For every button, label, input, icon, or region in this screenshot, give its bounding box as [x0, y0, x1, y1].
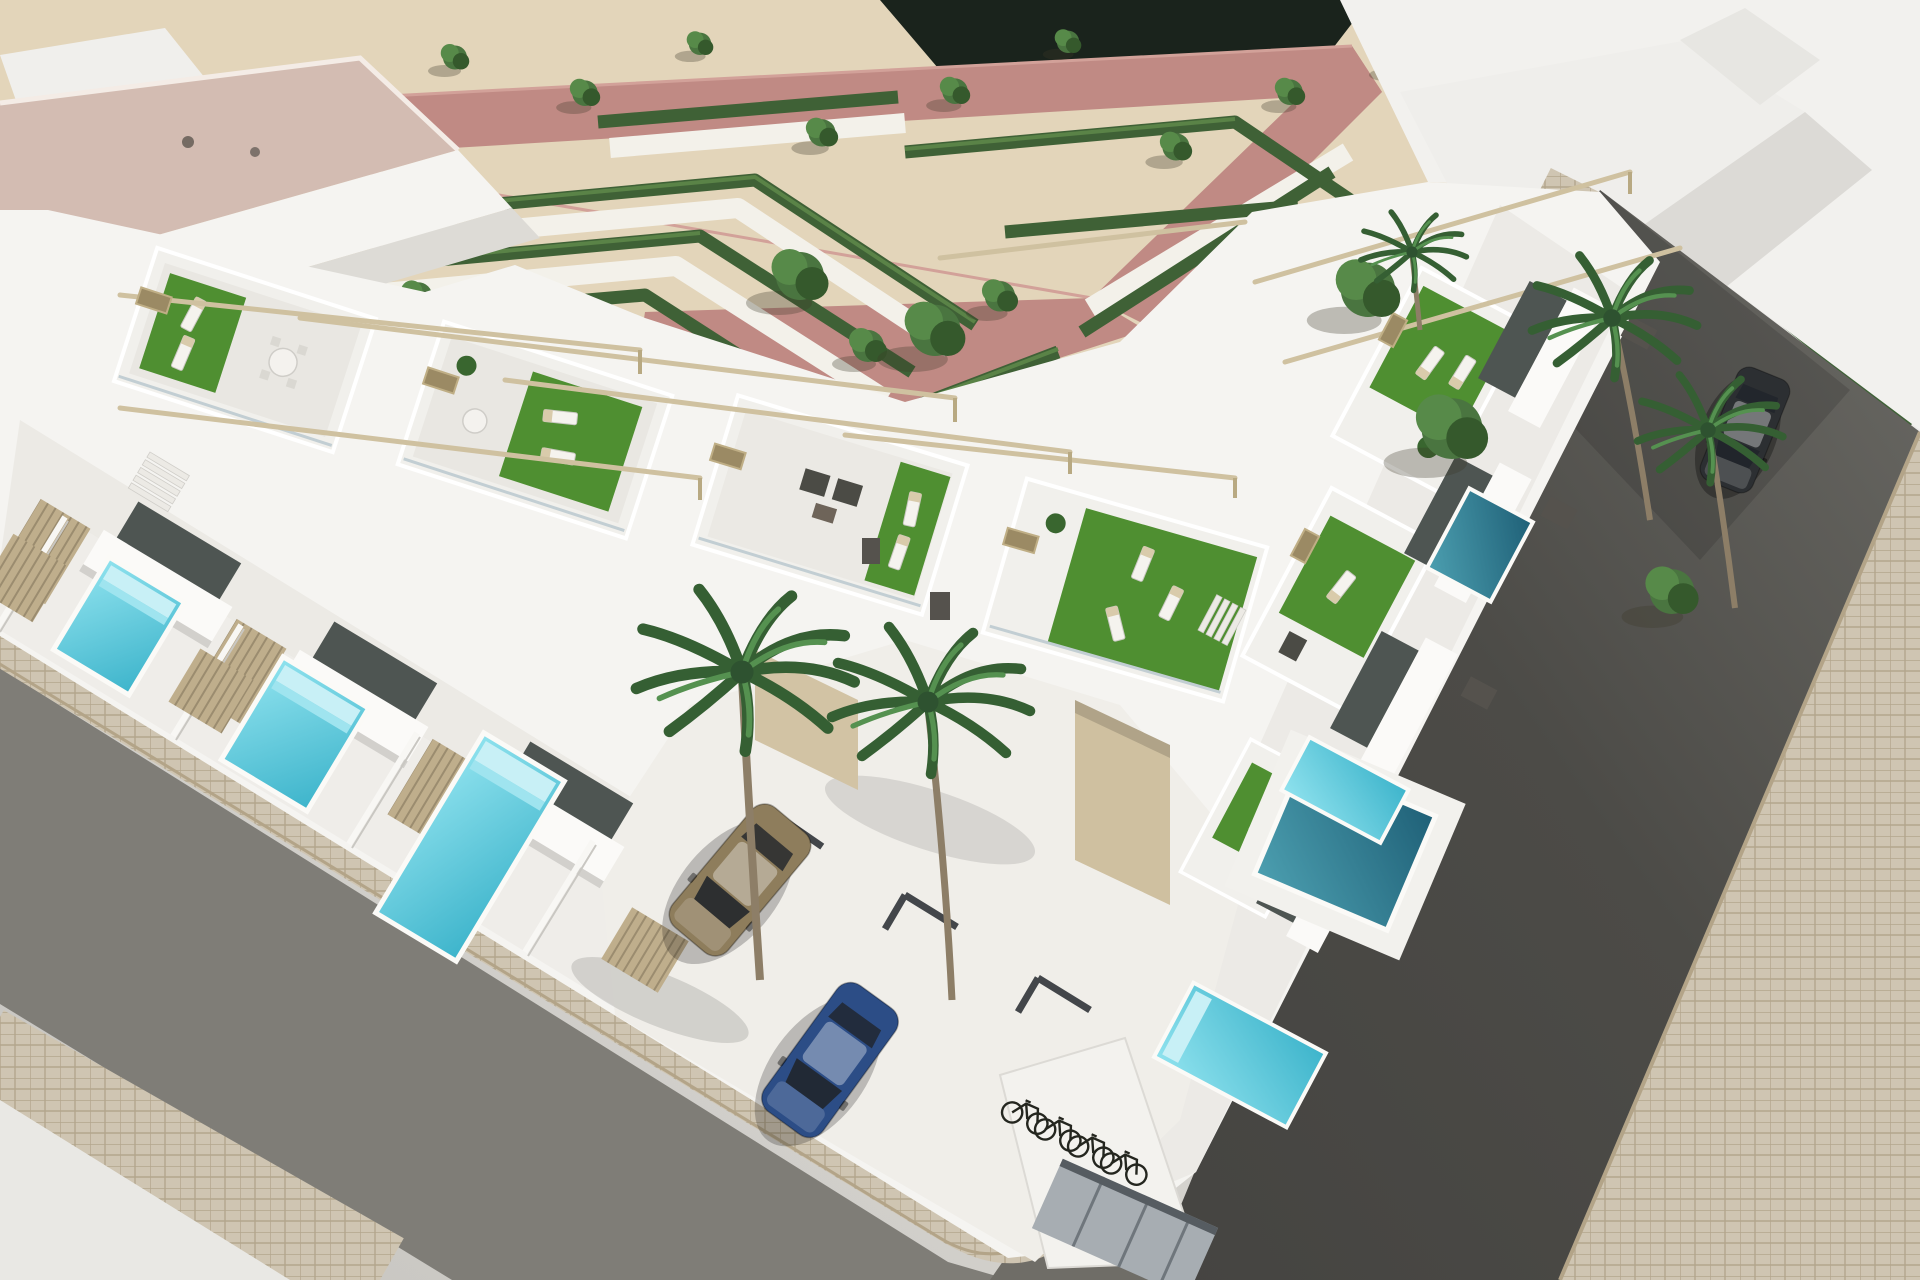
scene-svg: Aerial 3D render of a modern white townh… [0, 0, 1920, 1280]
roof-vent-dot [250, 147, 260, 157]
small-window [862, 538, 880, 564]
roof-vent-dot [182, 136, 194, 148]
render-canvas: Aerial 3D render of a modern white townh… [0, 0, 1920, 1280]
small-window [930, 592, 950, 620]
